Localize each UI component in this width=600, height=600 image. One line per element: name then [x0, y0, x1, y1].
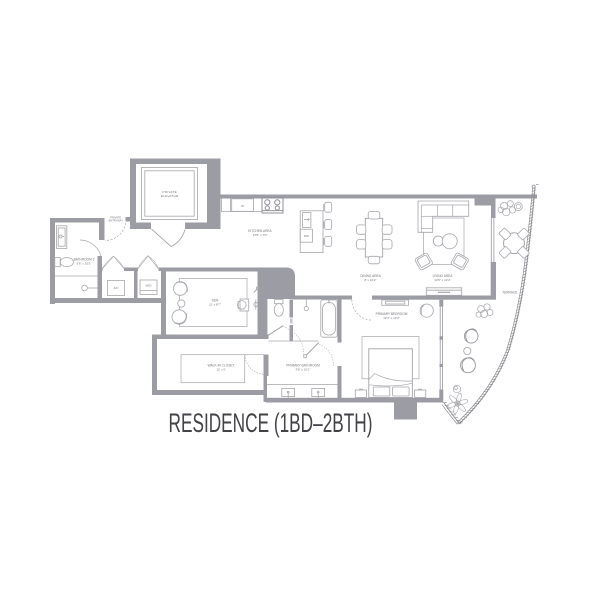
svg-text:8' x 10'2": 8' x 10'2"	[364, 278, 376, 282]
svg-text:ENTRYWAY: ENTRYWAY	[109, 218, 124, 222]
svg-text:12' x 5': 12' x 5'	[216, 368, 226, 372]
svg-text:RESIDENCE (1BD–2BTH): RESIDENCE (1BD–2BTH)	[169, 408, 373, 438]
svg-text:TERRACE: TERRACE	[502, 291, 517, 295]
svg-text:14'5" x 13'4": 14'5" x 13'4"	[434, 278, 450, 282]
svg-text:W/D: W/D	[146, 283, 153, 287]
svg-text:5'6" x 10'5": 5'6" x 10'5"	[77, 262, 92, 266]
svg-text:ELEVATOR: ELEVATOR	[161, 194, 179, 198]
svg-text:11' x 8'7": 11' x 8'7"	[209, 303, 221, 307]
svg-text:13'6" x 7'0": 13'6" x 7'0"	[253, 233, 268, 237]
svg-text:9'6" x 10'1": 9'6" x 10'1"	[296, 368, 311, 372]
svg-text:W: W	[241, 204, 244, 208]
svg-text:DW: DW	[304, 234, 309, 238]
svg-text:12'4" x 13'4": 12'4" x 13'4"	[383, 316, 399, 320]
svg-text:A/C: A/C	[113, 286, 119, 290]
